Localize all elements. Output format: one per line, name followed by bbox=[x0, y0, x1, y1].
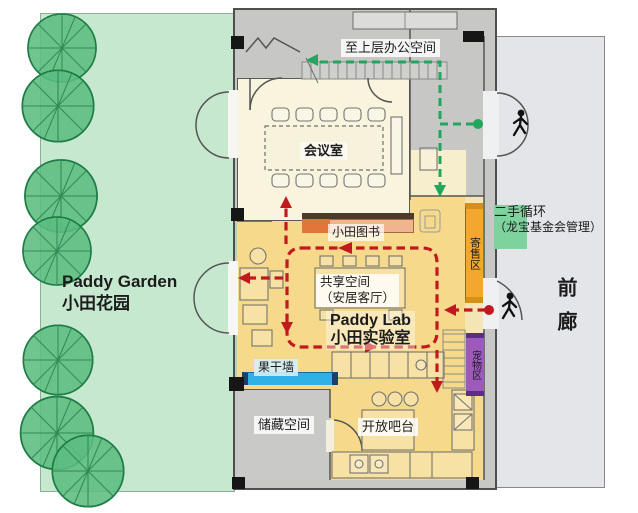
column bbox=[229, 377, 244, 391]
column bbox=[232, 477, 245, 489]
column bbox=[463, 31, 484, 42]
shared-space-line2: （安居客厅） bbox=[320, 291, 395, 307]
consignment-label: 寄售区 bbox=[467, 237, 483, 270]
shared-space-line1: 共享空间 bbox=[320, 275, 395, 291]
bar-label: 开放吧台 bbox=[358, 418, 418, 436]
column bbox=[231, 208, 244, 221]
porch-label: 前廊 bbox=[548, 276, 581, 368]
red-entry-dot bbox=[484, 305, 494, 315]
garden-label-en: Paddy Garden bbox=[62, 271, 177, 293]
round-table bbox=[250, 248, 266, 264]
floor-plan-overlay bbox=[0, 0, 638, 513]
sideboard bbox=[391, 117, 402, 174]
kitchen-counter bbox=[332, 352, 444, 378]
bottom-counter bbox=[332, 452, 472, 478]
hall-cabinet bbox=[420, 148, 437, 170]
right-counter bbox=[452, 390, 474, 450]
floor-plan: 寄售区 宠物区 bbox=[0, 0, 638, 513]
lab-label-en: Paddy Lab bbox=[330, 312, 411, 330]
pet-area-strip: 宠物区 bbox=[466, 333, 484, 396]
storage-label: 储藏空间 bbox=[254, 416, 314, 434]
lab-label-zh: 小田实验室 bbox=[330, 330, 411, 348]
bookshelf-accent bbox=[302, 219, 330, 233]
meeting-room-label: 会议室 bbox=[300, 142, 347, 160]
display-case bbox=[420, 210, 440, 232]
lab-label: Paddy Lab 小田实验室 bbox=[326, 311, 415, 350]
green-entry-dot bbox=[473, 119, 483, 129]
garden-label: Paddy Garden 小田花园 bbox=[58, 270, 181, 316]
secondhand-line2: （龙宝基金会管理） bbox=[494, 220, 602, 235]
upper-route-label: 至上层办公空间 bbox=[341, 39, 440, 57]
garden-label-zh: 小田花园 bbox=[62, 293, 177, 315]
tree-icon bbox=[21, 14, 124, 507]
fruit-wall-label: 果干墙 bbox=[254, 359, 298, 376]
secondhand-label: 二手循环 （龙宝基金会管理） bbox=[494, 204, 602, 235]
pet-area-label: 宠物区 bbox=[468, 350, 483, 380]
folding-door-icon bbox=[246, 38, 300, 52]
consignment-strip: 寄售区 bbox=[465, 203, 483, 303]
column bbox=[466, 477, 479, 489]
library-label: 小田图书 bbox=[328, 224, 384, 241]
secondhand-line1: 二手循环 bbox=[494, 204, 602, 220]
bar-stools bbox=[372, 392, 418, 406]
column bbox=[231, 36, 244, 49]
shared-space-label: 共享空间 （安居客厅） bbox=[316, 274, 399, 307]
person-icon bbox=[514, 110, 527, 135]
